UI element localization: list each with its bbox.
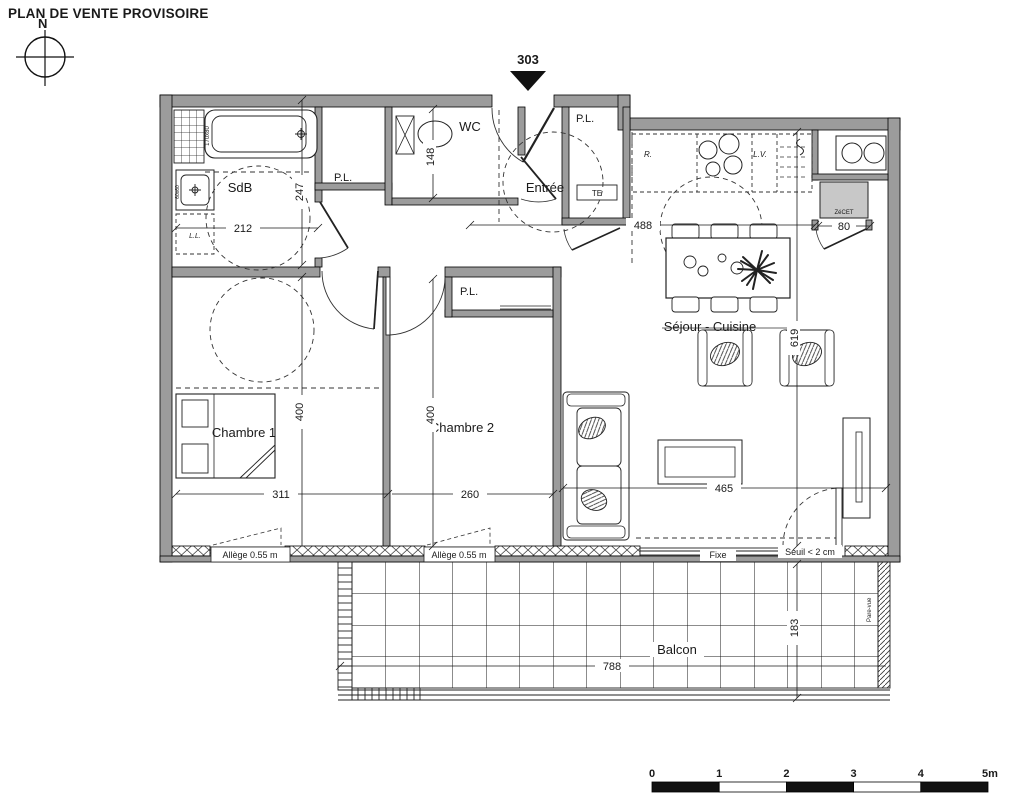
entry-closet: P.L. TE bbox=[564, 113, 620, 250]
floor-plan-page: PLAN DE VENTE PROVISOIRE N 303 bbox=[0, 0, 1023, 800]
entrance-marker-icon: 303 bbox=[510, 52, 546, 91]
window-label-fixe: Fixe bbox=[700, 549, 736, 561]
scale-tick-3: 3 bbox=[851, 768, 857, 780]
tiled-area bbox=[174, 110, 204, 163]
privacy-screen bbox=[878, 562, 890, 688]
svg-text:Allège 0.55 m: Allège 0.55 m bbox=[431, 550, 486, 560]
water-heater: ZéCET bbox=[816, 182, 868, 249]
dim-wc-height: 148 bbox=[425, 148, 437, 166]
closet-label-pl-entree: P.L. bbox=[576, 113, 594, 125]
scale-tick-4: 4 bbox=[918, 768, 925, 780]
dim-sejour-height: 619 bbox=[789, 329, 801, 347]
sofa bbox=[563, 392, 629, 540]
privacy-screen-label: Pare-vue bbox=[867, 597, 873, 622]
dining-set bbox=[666, 224, 790, 312]
closet-label-pl-chambre2: P.L. bbox=[460, 286, 478, 298]
threshold-label: Seuil < 2 cm bbox=[778, 545, 842, 558]
north-label: N bbox=[38, 16, 47, 31]
dim-chambre1-width: 311 bbox=[272, 489, 290, 501]
dim-balcon-depth: 183 bbox=[789, 619, 801, 637]
bedroom2-closet: P.L. bbox=[460, 286, 551, 309]
dim-sdb-height: 247 bbox=[294, 183, 306, 201]
closet-label-pl-sdb: P.L. bbox=[334, 172, 352, 184]
dishwasher-label: L.V. bbox=[753, 150, 767, 159]
room-label-balcon: Balcon bbox=[657, 642, 697, 657]
fridge-label: R. bbox=[644, 150, 652, 159]
svg-text:Allège 0.55 m: Allège 0.55 m bbox=[222, 550, 277, 560]
washbasin bbox=[176, 170, 214, 210]
closet-door-leaf bbox=[572, 228, 620, 250]
room-label-chambre2: Chambre 2 bbox=[430, 420, 494, 435]
scale-tick-0: 0 bbox=[649, 768, 655, 780]
dim-kitchen-width: 488 bbox=[634, 220, 652, 232]
dim-chambre2-width: 260 bbox=[461, 489, 479, 501]
armchair bbox=[698, 330, 752, 386]
north-compass-icon: N bbox=[16, 16, 74, 86]
water-heater-label: ZéCET bbox=[834, 210, 853, 216]
sink-unit bbox=[836, 136, 886, 170]
svg-text:Seuil < 2 cm: Seuil < 2 cm bbox=[785, 547, 835, 557]
tv-unit bbox=[843, 418, 870, 518]
balcony: Balcon Pare-vue bbox=[338, 562, 890, 700]
room-label-sdb: SdB bbox=[228, 180, 253, 195]
window-label-allege1: Allège 0.55 m bbox=[211, 547, 290, 562]
room-label-wc: WC bbox=[459, 119, 481, 134]
washing-machine-label: L.L. bbox=[189, 233, 201, 240]
svg-text:Fixe: Fixe bbox=[709, 550, 726, 560]
room-label-chambre1: Chambre 1 bbox=[212, 425, 276, 440]
dim-balcon-width: 788 bbox=[603, 661, 621, 673]
cooktop bbox=[699, 134, 742, 176]
lot-number: 303 bbox=[517, 52, 539, 67]
coffee-table bbox=[658, 440, 742, 484]
washbasin-size-label: 60x60 bbox=[175, 185, 181, 199]
room-label-balcon-box: Balcon bbox=[650, 642, 704, 657]
electrical-panel-label: TE bbox=[592, 189, 602, 198]
scale-tick-2: 2 bbox=[783, 768, 789, 780]
casement-swing bbox=[213, 528, 281, 545]
wc-room: WC bbox=[396, 116, 481, 154]
scale-tick-5: 5m bbox=[982, 768, 998, 780]
floor-plan-drawing: PLAN DE VENTE PROVISOIRE N 303 bbox=[0, 0, 1023, 800]
room-label-sejour: Séjour - Cuisine bbox=[664, 319, 757, 334]
dim-cet-width: 80 bbox=[838, 221, 850, 233]
scale-bar: 0 1 2 3 4 5m bbox=[649, 768, 998, 792]
dim-chambre2-height: 400 bbox=[425, 406, 437, 424]
window-label-allege2: Allège 0.55 m bbox=[424, 547, 495, 562]
room-label-entree: Entrée bbox=[526, 180, 564, 195]
dim-chambre1-height: 400 bbox=[294, 403, 306, 421]
scale-tick-1: 1 bbox=[716, 768, 722, 780]
kitchen-counter bbox=[632, 134, 812, 192]
turning-circle bbox=[210, 278, 314, 382]
dim-sdb-width: 212 bbox=[234, 223, 252, 235]
bathtub bbox=[205, 110, 317, 158]
dim-sejour-width: 465 bbox=[715, 483, 733, 495]
bathtub-size-label: 170x80 bbox=[205, 125, 211, 145]
balcony-edge bbox=[338, 562, 352, 690]
